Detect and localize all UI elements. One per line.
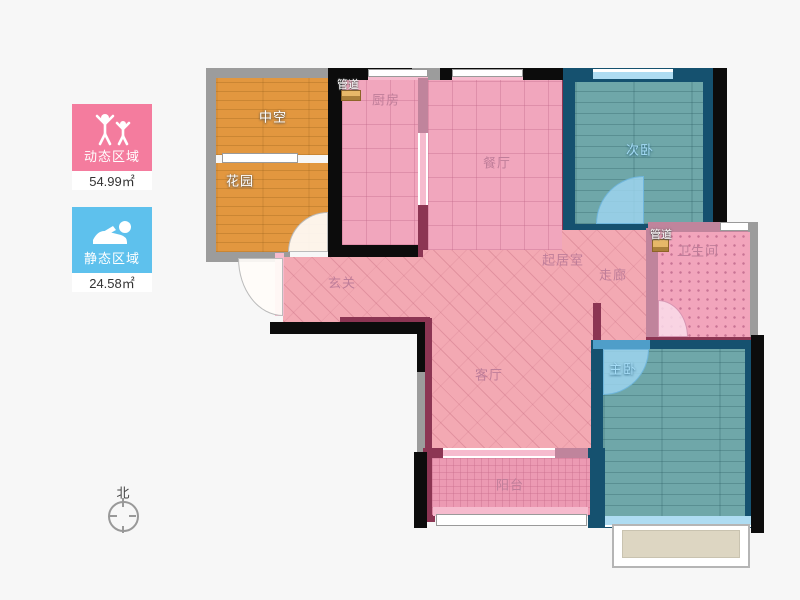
- people-active-icon: [90, 112, 134, 146]
- wall-master-top-light: [593, 340, 650, 349]
- wall-balcony-right: [588, 448, 605, 528]
- room-label-kitchen: 厨房: [372, 90, 400, 109]
- bathroom-window: [720, 222, 750, 231]
- room-label-living: 起居室: [542, 250, 584, 269]
- room-label-dining: 餐厅: [483, 153, 511, 172]
- kitchen-sliding-door: [418, 133, 428, 205]
- legend-dynamic-value: 54.99㎡: [72, 171, 152, 190]
- compass-tick-n: [122, 498, 124, 507]
- wall-balcony-left: [414, 452, 427, 528]
- wall-foyer-bottom: [270, 322, 425, 334]
- wall-kitchen-dining-bottom: [418, 205, 428, 257]
- compass-tick-s: [122, 526, 124, 533]
- legend-static-value: 24.58㎡: [72, 273, 152, 292]
- master-bay-window-inner: [622, 530, 740, 558]
- room-label-master: 主卧: [609, 359, 637, 378]
- compass-tick-w: [110, 515, 117, 517]
- wall-kitchen-bottom: [337, 245, 430, 257]
- room-label-duct-top: 管道: [337, 76, 359, 92]
- legend-dynamic-area[interactable]: 动态区域: [72, 104, 152, 171]
- room-label-bathroom: 卫生间: [677, 241, 719, 260]
- wall-bedroom2-right: [713, 68, 727, 237]
- window-void-garden: [222, 153, 298, 163]
- dining-window: [452, 69, 523, 77]
- room-label-bedroom2: 次卧: [626, 140, 654, 159]
- wall-annex-top: [206, 68, 342, 78]
- floorplan-canvas: 动态区域 54.99㎡ 静态区域 24.58㎡ 北: [0, 0, 800, 600]
- room-label-void: 中空: [259, 107, 287, 126]
- compass-tick-e: [129, 515, 136, 517]
- legend-static-label: 静态区域: [84, 248, 140, 267]
- wall-annex-left: [206, 68, 216, 262]
- balcony-sliding-door: [443, 448, 560, 458]
- room-label-parlor: 客厅: [475, 365, 503, 384]
- wall-corridor-stub: [593, 303, 601, 345]
- bedroom2-window: [593, 69, 673, 79]
- wall-parlor-left-lower: [417, 372, 425, 452]
- kitchen-window: [368, 69, 428, 77]
- wall-master-right: [751, 335, 764, 533]
- room-label-garden: 花园: [226, 171, 254, 190]
- room-label-duct-bath: 管道: [650, 226, 672, 242]
- balcony-window: [436, 514, 587, 526]
- legend-static-area[interactable]: 静态区域: [72, 207, 152, 273]
- legend-dynamic-label: 动态区域: [84, 146, 140, 165]
- room-label-foyer: 玄关: [328, 273, 356, 292]
- room-label-balcony: 阳台: [496, 475, 524, 494]
- wall-parlor-left-upper: [417, 322, 425, 372]
- wall-parlor-left-inner: [424, 318, 432, 452]
- person-sleeping-icon: [89, 218, 135, 248]
- entry-door-arc[interactable]: [238, 258, 283, 316]
- wall-kitchen-dining-top: [418, 78, 428, 133]
- room-label-corridor: 走廊: [599, 265, 627, 284]
- wall-annex-right: [328, 68, 342, 258]
